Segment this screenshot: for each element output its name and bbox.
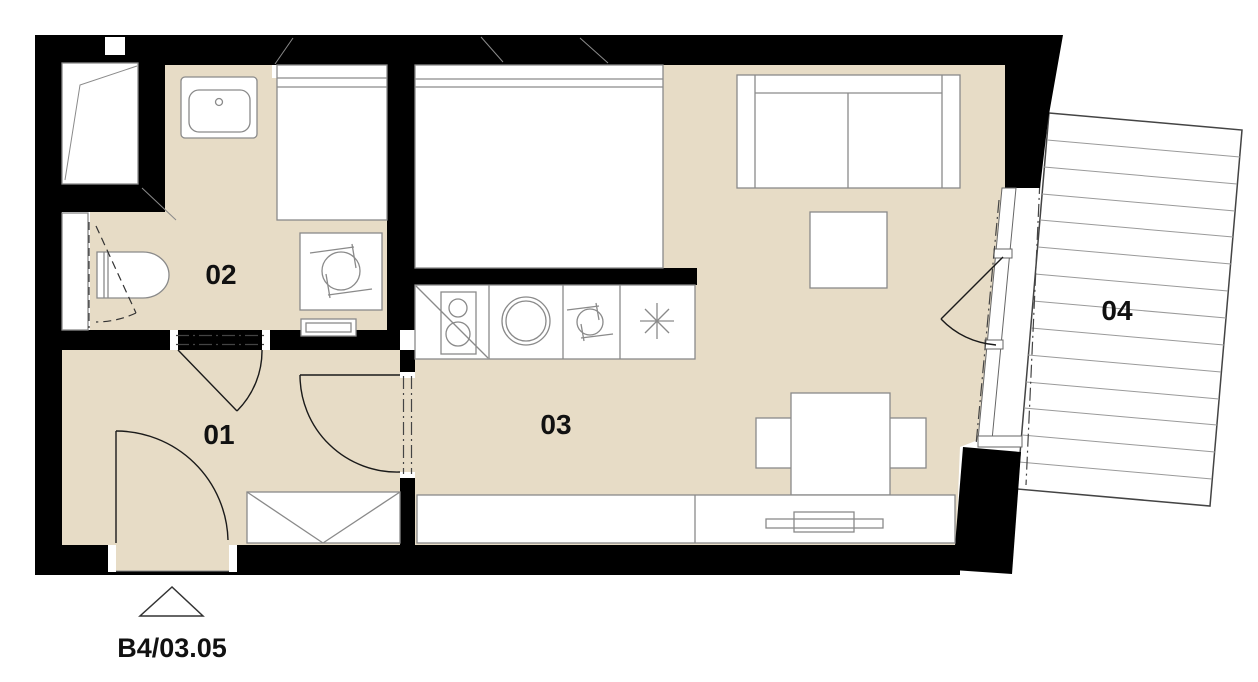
jamb xyxy=(170,330,178,350)
shaft-opening xyxy=(62,63,138,184)
wall-bed-niche xyxy=(415,268,697,285)
entrance-threshold xyxy=(116,545,229,571)
washing-machine xyxy=(300,233,382,310)
kitchen-counter xyxy=(415,285,695,359)
living-doorway-floor xyxy=(400,378,415,472)
sofa xyxy=(737,75,960,188)
chair-left xyxy=(756,418,792,468)
wall-niche xyxy=(62,213,88,330)
coffee-table xyxy=(810,212,887,288)
wall-north xyxy=(35,35,1005,65)
room-label-04: 04 xyxy=(1101,295,1133,326)
bed xyxy=(415,65,663,268)
dining-table xyxy=(791,393,890,495)
room-label-03: 03 xyxy=(540,409,571,440)
wall-bathroom-east xyxy=(387,35,415,330)
wall-hall-east-lower xyxy=(400,472,415,545)
toilet xyxy=(97,252,169,298)
unit-label: B4/03.05 xyxy=(117,633,227,663)
hall-furniture xyxy=(247,492,400,543)
room-label-01: 01 xyxy=(203,419,234,450)
entrance-marker-icon xyxy=(140,587,203,616)
window-sill xyxy=(978,436,1022,447)
wall-southeast-block xyxy=(953,447,1021,574)
sideboard xyxy=(417,495,955,543)
jamb xyxy=(262,330,270,350)
wardrobe xyxy=(247,492,400,543)
jamb xyxy=(400,372,415,378)
jamb xyxy=(229,545,237,572)
chair-right xyxy=(888,418,926,468)
shower xyxy=(277,65,387,220)
jamb xyxy=(400,472,415,478)
jamb xyxy=(108,545,116,572)
radiator xyxy=(301,319,356,336)
floor-plan: 01 02 03 04 B4/03.05 xyxy=(0,0,1258,682)
floor-plan-drawing: 01 02 03 04 B4/03.05 xyxy=(0,0,1258,682)
room-label-02: 02 xyxy=(205,259,236,290)
installation-shaft xyxy=(62,63,138,184)
wall-joint-gap xyxy=(105,37,125,55)
window-mullion xyxy=(994,249,1012,258)
unit-marker: B4/03.05 xyxy=(117,587,227,663)
